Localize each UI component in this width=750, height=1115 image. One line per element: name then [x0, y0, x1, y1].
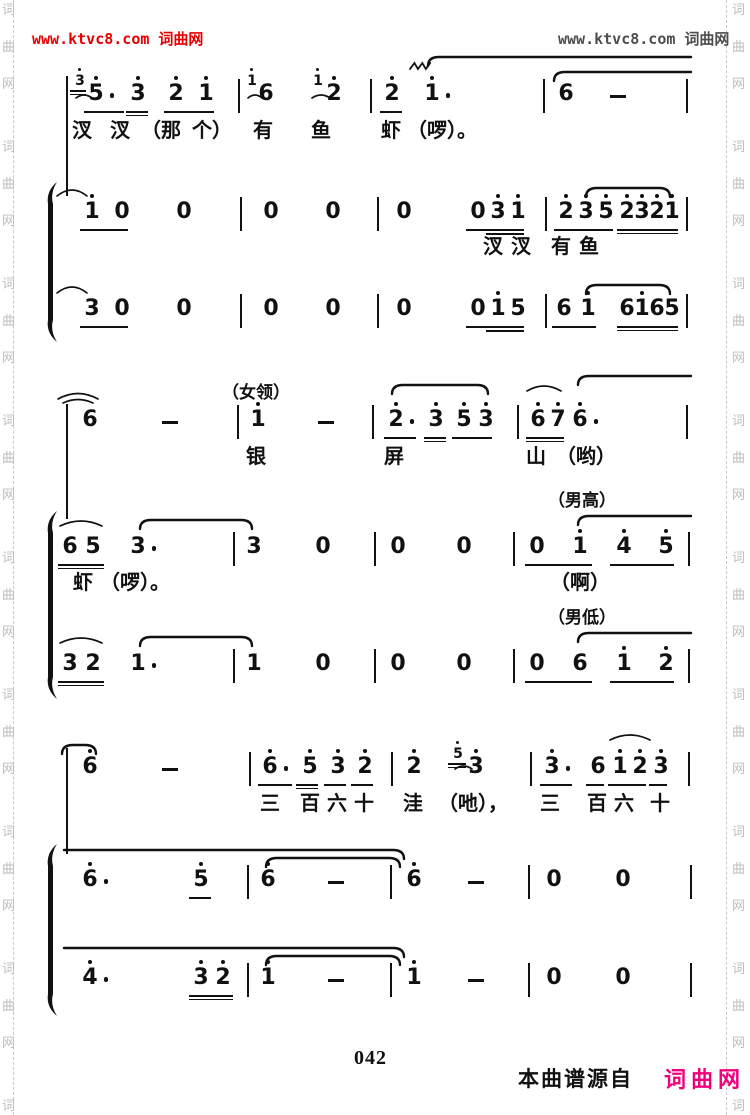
side-watermark-char: 词 [732, 826, 745, 839]
note: 3 [62, 652, 78, 676]
note: 1 [130, 652, 146, 676]
lyric-text: 三 [260, 787, 280, 816]
beam-underline [452, 437, 492, 439]
slur [610, 735, 650, 740]
beam-underline [540, 784, 572, 786]
barline [390, 865, 392, 899]
side-watermark-char: 网 [732, 352, 745, 365]
voice-part-label: （男高） [548, 486, 616, 511]
slur [140, 520, 252, 529]
side-watermark-char: 网 [732, 489, 745, 502]
side-watermark-char: 词 [732, 4, 745, 17]
lyric-text: 山 [526, 440, 546, 469]
side-watermark-char: 词 [2, 689, 15, 702]
slur [266, 858, 400, 867]
lyric-text: （吔）， [438, 787, 508, 816]
note: 0 [470, 297, 486, 321]
beam-underline [58, 685, 104, 687]
dash-note [328, 881, 344, 884]
octave-dot [456, 741, 459, 744]
note: 0 [315, 652, 331, 676]
note: 2 [168, 82, 184, 106]
beam-underline [58, 681, 104, 683]
barline [249, 752, 251, 786]
slur [266, 956, 400, 965]
beam-underline [70, 90, 86, 92]
side-watermark-char: 曲 [732, 726, 745, 739]
note: 0 [529, 652, 545, 676]
octave-dot [363, 749, 367, 753]
octave-dot [536, 402, 540, 406]
barline [686, 79, 688, 113]
note: 0 [176, 297, 192, 321]
slur [64, 850, 404, 859]
side-watermark-char: 网 [732, 626, 745, 639]
lyric-text: 有 [551, 230, 571, 259]
octave-dot [496, 291, 500, 295]
note: 6 [260, 868, 276, 892]
beam-underline [554, 229, 613, 231]
note: 6 [258, 82, 274, 106]
note: 1 [84, 200, 100, 224]
note: 0 [529, 535, 545, 559]
barline [374, 649, 376, 683]
beam-underline [486, 330, 524, 332]
octave-dot [308, 749, 312, 753]
octave-dot [390, 76, 394, 80]
barline [517, 405, 519, 439]
side-watermark-char: 曲 [2, 452, 15, 465]
note: 0 [263, 200, 279, 224]
note: 1 [250, 408, 266, 432]
lyric-text: 有 [253, 114, 273, 143]
note: 1 [246, 652, 262, 676]
octave-dot [664, 529, 668, 533]
barline [377, 197, 379, 231]
side-watermark-char: 网 [2, 626, 15, 639]
octave-dot [578, 402, 582, 406]
beam-underline [617, 326, 678, 328]
note: 1 [616, 652, 632, 676]
beam-underline [617, 229, 678, 231]
barline [513, 649, 515, 683]
beam-underline [448, 767, 466, 769]
note: 5 [88, 82, 104, 106]
barline [686, 405, 688, 439]
barline [688, 752, 690, 786]
octave-dot [412, 749, 416, 753]
side-watermark-char: 词 [2, 826, 15, 839]
barline [391, 752, 393, 786]
beam-underline [610, 681, 674, 683]
note: 3 [193, 966, 209, 990]
lyric-text: 六 [327, 787, 347, 816]
note: 2 [406, 755, 422, 779]
side-watermark-char: 曲 [732, 589, 745, 602]
system-brace [48, 182, 57, 342]
side-watermark-char: 曲 [732, 863, 745, 876]
augmentation-dot [104, 879, 109, 884]
beam-underline [84, 111, 124, 113]
note: 2 [658, 652, 674, 676]
side-watermark-char: 词 [732, 415, 745, 428]
note: 0 [176, 200, 192, 224]
side-watermark-char: 曲 [2, 726, 15, 739]
beam-underline [189, 995, 233, 997]
note: 3 [468, 755, 484, 779]
octave-dot [199, 862, 203, 866]
side-watermark-char: 曲 [732, 1000, 745, 1013]
note: 0 [325, 297, 341, 321]
octave-dot [90, 194, 94, 198]
grace-note: 3 [74, 73, 86, 89]
dash-note [328, 979, 344, 982]
octave-dot [78, 68, 81, 71]
beam-underline [466, 326, 524, 328]
note: 1 [510, 200, 526, 224]
barline [543, 79, 545, 113]
side-watermark-char: 网 [732, 215, 745, 228]
system-brace [48, 844, 57, 1016]
octave-dot [556, 402, 560, 406]
beam-underline [649, 784, 667, 786]
side-watermark-char: 曲 [732, 178, 745, 191]
note: 6 [590, 755, 606, 779]
side-watermark-char: 词 [2, 552, 15, 565]
note: 6 [572, 652, 588, 676]
beam-underline [80, 326, 128, 328]
augmentation-dot [594, 419, 599, 424]
note: 1 [634, 297, 650, 321]
octave-dot [625, 194, 629, 198]
note: 3 [84, 297, 100, 321]
side-watermark-char: 词 [2, 1100, 15, 1113]
beam-underline [351, 784, 373, 786]
grace-note: 1 [246, 73, 258, 89]
octave-dot [564, 194, 568, 198]
beam-underline [486, 233, 524, 235]
lyric-text: （啊） [550, 566, 610, 595]
side-watermark-char: 网 [2, 489, 15, 502]
lyric-text: （啰）。 [100, 566, 170, 595]
barline [237, 405, 239, 439]
note: 0 [390, 535, 406, 559]
note: 0 [315, 535, 331, 559]
beam-underline [526, 437, 564, 439]
note: 6 [649, 297, 665, 321]
note: 0 [114, 200, 130, 224]
note: 7 [550, 408, 566, 432]
slur [63, 400, 93, 404]
system-brace [48, 511, 57, 699]
grace-note: 1 [312, 73, 324, 89]
note: 6 [82, 408, 98, 432]
slur [60, 638, 102, 643]
slur [428, 57, 691, 66]
note: 3 [130, 535, 146, 559]
beam-underline [617, 233, 678, 235]
barline [545, 197, 547, 231]
lyric-text: 虾 [381, 114, 401, 143]
slur [58, 394, 98, 400]
slur [140, 637, 252, 646]
octave-dot [516, 194, 520, 198]
note: 6 [619, 297, 635, 321]
octave-dot [221, 960, 225, 964]
slur [554, 72, 691, 81]
barline [233, 532, 235, 566]
note: 3 [578, 200, 594, 224]
lyric-text: 百 [300, 787, 320, 816]
octave-dot [640, 291, 644, 295]
beam-underline [525, 681, 592, 683]
beam-underline [608, 784, 646, 786]
octave-dot [434, 402, 438, 406]
note: 6 [558, 82, 574, 106]
beam-underline [448, 763, 466, 765]
note: 0 [546, 966, 562, 990]
note: 6 [262, 755, 278, 779]
octave-dot [640, 194, 644, 198]
note: 1 [572, 535, 588, 559]
note: 6 [530, 408, 546, 432]
note: 6 [556, 297, 572, 321]
augmentation-dot [104, 977, 109, 982]
octave-dot [412, 960, 416, 964]
note: 5 [598, 200, 614, 224]
barline [688, 649, 690, 683]
side-watermark-char: 曲 [2, 315, 15, 328]
octave-dot [670, 194, 674, 198]
barline [240, 294, 242, 328]
octave-dot [586, 291, 590, 295]
barline [390, 963, 392, 997]
note: 2 [384, 82, 400, 106]
note: 2 [558, 200, 574, 224]
side-watermark-char: 词 [732, 689, 745, 702]
note: 2 [215, 966, 231, 990]
octave-dot [550, 749, 554, 753]
system-barline [66, 76, 68, 196]
note: 3 [478, 408, 494, 432]
note: 4 [616, 535, 632, 559]
beam-underline [380, 111, 402, 113]
note: 0 [546, 868, 562, 892]
slur [57, 190, 87, 196]
note: 5 [302, 755, 318, 779]
dash-note [468, 881, 484, 884]
note: 2 [388, 408, 404, 432]
system-barline [66, 748, 68, 854]
augmentation-dot [410, 419, 415, 424]
dash-note [318, 421, 334, 424]
lyric-text: 鱼 [579, 230, 599, 259]
right-border-dashline [726, 0, 727, 1115]
beam-underline [80, 229, 128, 231]
system-barline [66, 404, 68, 519]
slur [586, 285, 670, 294]
side-watermark-char: 曲 [732, 452, 745, 465]
footer-brand-link[interactable]: 词曲网 [664, 1062, 745, 1094]
octave-dot [316, 68, 319, 71]
side-watermark-char: 曲 [2, 1000, 15, 1013]
octave-dot [496, 194, 500, 198]
octave-dot [250, 68, 253, 71]
beam-underline [58, 564, 104, 566]
note: 5 [85, 535, 101, 559]
barline [377, 294, 379, 328]
barline [688, 532, 690, 566]
side-watermark-char: 网 [732, 900, 745, 913]
lyric-text: （啰）。 [407, 114, 477, 143]
barline [528, 865, 530, 899]
beam-underline [424, 437, 446, 439]
augmentation-dot [152, 663, 157, 668]
augmentation-dot [566, 766, 571, 771]
octave-dot [266, 960, 270, 964]
side-watermark-char: 词 [2, 415, 15, 428]
side-watermark-char: 词 [732, 278, 745, 291]
side-watermark-char: 网 [2, 78, 15, 91]
barline [690, 963, 692, 997]
lyric-text: 百 [587, 787, 607, 816]
note: 2 [649, 200, 665, 224]
octave-dot [664, 646, 668, 650]
note: 2 [357, 755, 373, 779]
side-watermark-char: 词 [732, 552, 745, 565]
octave-dot [622, 529, 626, 533]
slur [578, 516, 691, 525]
beam-underline [586, 784, 604, 786]
beam-underline [296, 784, 318, 786]
barline [238, 79, 240, 113]
voice-part-label: （女领） [222, 378, 290, 403]
page-number: 042 [354, 1047, 387, 1070]
lyric-text: （那 [141, 114, 181, 143]
note: 0 [390, 652, 406, 676]
grace-note: 5 [452, 746, 464, 762]
note: 4 [82, 966, 98, 990]
lyric-text: 虾 [73, 566, 93, 595]
watermark-top-left: www.ktvc8.com 词曲网 [32, 28, 203, 49]
barline [528, 963, 530, 997]
side-watermark-char: 网 [732, 78, 745, 91]
slur [578, 633, 691, 642]
note: 0 [470, 200, 486, 224]
octave-dot [266, 862, 270, 866]
barline [233, 649, 235, 683]
beam-underline [617, 330, 678, 332]
note: 0 [396, 200, 412, 224]
slur [57, 287, 87, 293]
note: 5 [658, 535, 674, 559]
lyric-text: 十 [650, 787, 670, 816]
beam-underline [189, 999, 233, 1001]
note: 3 [490, 200, 506, 224]
note: 0 [615, 868, 631, 892]
barline [240, 197, 242, 231]
watermark-top-right: www.ktvc8.com 词曲网 [558, 28, 729, 49]
note: 6 [406, 868, 422, 892]
note: 0 [325, 200, 341, 224]
side-watermark-char: 词 [732, 1100, 745, 1113]
lyric-text: 洼 [403, 787, 423, 816]
beam-underline [466, 229, 524, 231]
note: 3 [330, 755, 346, 779]
note: 1 [198, 82, 214, 106]
beam-underline [189, 897, 211, 899]
lyric-text: 汊 [110, 114, 130, 143]
barline [374, 532, 376, 566]
note: 6 [62, 535, 78, 559]
octave-dot [584, 194, 588, 198]
octave-dot [88, 862, 92, 866]
slur [527, 386, 561, 391]
beam-underline [296, 788, 318, 790]
side-watermark-char: 词 [732, 963, 745, 976]
octave-dot [638, 749, 642, 753]
beam-underline [424, 441, 446, 443]
note: 5 [510, 297, 526, 321]
beam-underline [164, 111, 214, 113]
octave-dot [474, 749, 478, 753]
side-watermark-char: 词 [2, 963, 15, 976]
note: 3 [634, 200, 650, 224]
note: 6 [572, 408, 588, 432]
octave-dot [136, 76, 140, 80]
slur [392, 385, 488, 394]
barline [686, 294, 688, 328]
note: 2 [326, 82, 342, 106]
lyric-text: 银 [246, 440, 266, 469]
lyric-text: 三 [540, 787, 560, 816]
dash-note [610, 95, 626, 98]
augmentation-dot [284, 766, 289, 771]
note: 3 [653, 755, 669, 779]
note: 2 [85, 652, 101, 676]
sheet-music-page: 词曲网词曲网词曲网词曲网词曲网词曲网词曲网词曲网词词曲网词曲网词曲网词曲网词曲网… [0, 0, 750, 1115]
side-watermark-char: 网 [732, 763, 745, 776]
side-watermark-char: 曲 [732, 315, 745, 328]
note: 1 [664, 200, 680, 224]
lyric-text: 鱼 [311, 114, 331, 143]
beam-underline [552, 326, 596, 328]
octave-dot [462, 402, 466, 406]
note: 0 [615, 966, 631, 990]
note: 1 [580, 297, 596, 321]
note: 6 [82, 868, 98, 892]
side-watermark-char: 网 [2, 1037, 15, 1050]
barline [686, 197, 688, 231]
beam-underline [324, 784, 346, 786]
note: 0 [456, 535, 472, 559]
slur [410, 63, 430, 69]
note: 0 [114, 297, 130, 321]
note: 5 [664, 297, 680, 321]
octave-dot [412, 862, 416, 866]
side-watermark-char: 网 [2, 763, 15, 776]
lyric-text: 十 [354, 787, 374, 816]
note: 1 [612, 755, 628, 779]
note: 0 [396, 297, 412, 321]
beam-underline [126, 111, 148, 113]
beam-underline [384, 437, 416, 439]
footer-source-text: 本曲谱源自 [518, 1063, 633, 1093]
lyric-text: 屏 [384, 440, 404, 469]
slur [60, 521, 102, 526]
note: 3 [130, 82, 146, 106]
octave-dot [336, 749, 340, 753]
